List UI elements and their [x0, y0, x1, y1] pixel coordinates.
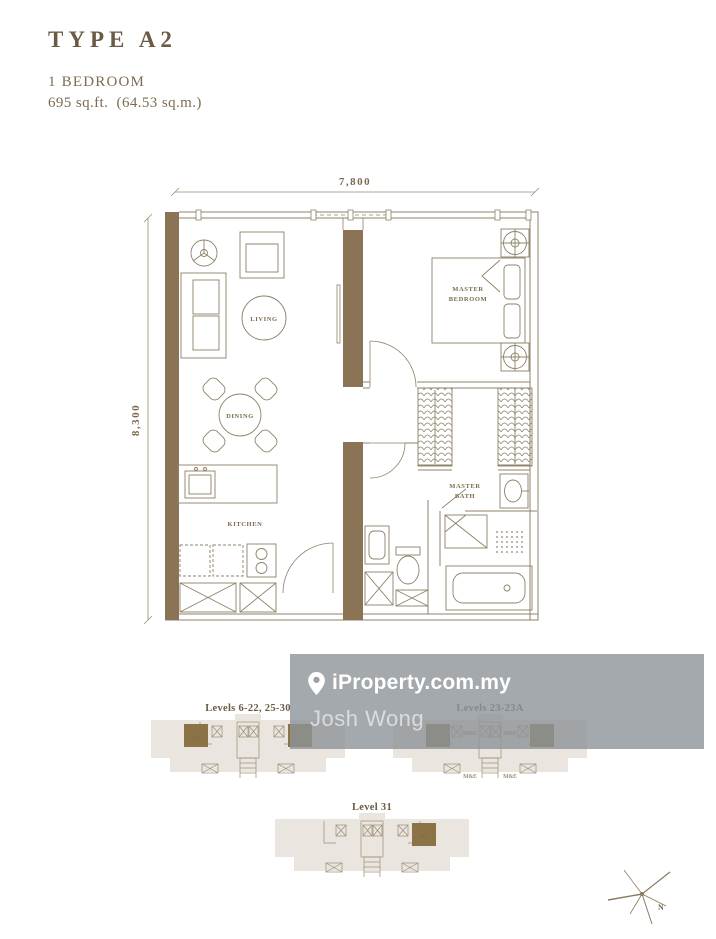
bathtub — [446, 566, 532, 610]
master-bath-label-1: MASTER — [449, 483, 480, 490]
bedroom-count: 1 BEDROOM — [48, 74, 145, 91]
kitchen-counter — [180, 544, 276, 612]
floorplan-page: TYPE A2 1 BEDROOM 695 sq.ft. (64.53 sq.m… — [0, 0, 716, 939]
ceiling-fan-icon — [191, 240, 217, 266]
armchair — [240, 232, 284, 278]
master-bedroom-label-2: BEDROOM — [449, 296, 488, 303]
compass-rose: N — [600, 862, 700, 932]
wardrobes — [418, 388, 532, 466]
dimension-height: 8,300 — [130, 404, 142, 436]
toilet — [396, 547, 420, 584]
page-title: TYPE A2 — [48, 27, 177, 53]
watermark-overlay: iProperty.com.my Josh Wong — [290, 654, 704, 749]
unit-area: 695 sq.ft. (64.53 sq.m.) — [48, 95, 202, 112]
bath-cabinets — [365, 572, 428, 606]
watermark-brand-text: iProperty.com.my — [332, 671, 511, 695]
location-pin-icon — [308, 672, 325, 695]
unit-number: 01 — [421, 833, 428, 840]
door-arcs — [283, 341, 466, 593]
sofa — [181, 273, 226, 358]
tv-console — [337, 285, 340, 343]
central-wall — [337, 218, 363, 620]
watermark-brand: iProperty.com.my — [308, 671, 511, 695]
master-bath-label-2: BATH — [455, 493, 475, 500]
keyplan-level-31: 01 — [272, 807, 472, 877]
dining-label: DINING — [226, 413, 254, 420]
kitchen-island — [178, 465, 277, 503]
living-rug: LIVING — [242, 296, 286, 340]
vanity-sink — [500, 474, 529, 508]
floorplan-drawing: 7,800 8,300 — [130, 170, 560, 640]
living-label: LIVING — [250, 316, 277, 323]
shower — [445, 515, 487, 548]
unit-number: 01 — [193, 734, 200, 741]
dimension-width: 7,800 — [339, 176, 371, 188]
watermark-agent: Josh Wong — [310, 706, 424, 732]
washer — [365, 526, 389, 564]
kitchen-label: KITCHEN — [228, 521, 263, 528]
master-bedroom-label-1: MASTER — [452, 286, 483, 293]
left-wall — [165, 212, 179, 620]
me-label: M&E — [463, 774, 477, 778]
me-label: M&E — [503, 774, 517, 778]
floor-drain-mat — [496, 530, 523, 555]
north-label: N — [658, 903, 664, 912]
